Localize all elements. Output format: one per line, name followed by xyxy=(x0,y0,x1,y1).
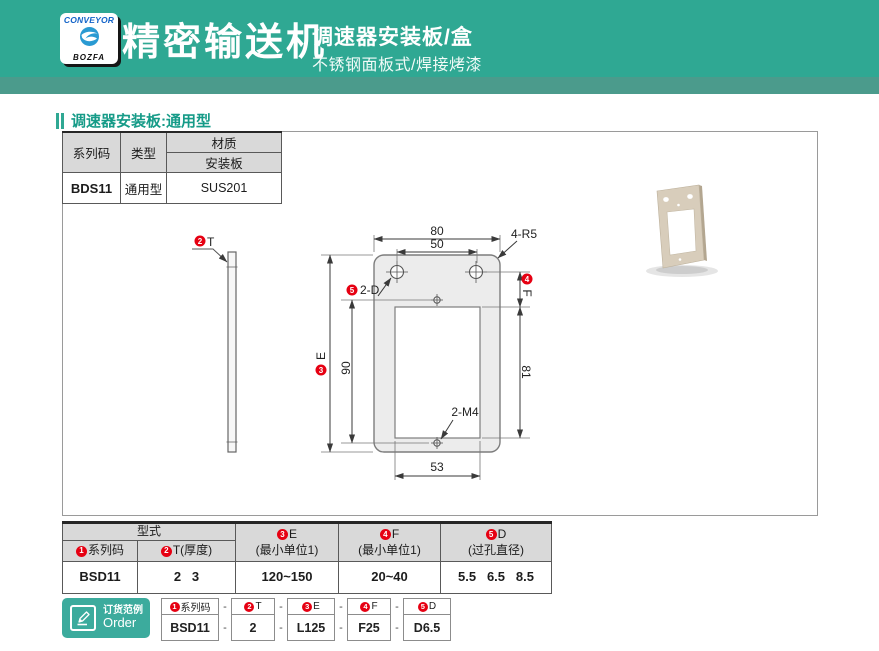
model-group-header: 型式 xyxy=(63,523,236,541)
badge-2-icon: 2 xyxy=(161,546,172,557)
model-header-thickness-label: T(厚度) xyxy=(173,543,212,557)
section-header: 调速器安装板:通用型 xyxy=(56,110,211,131)
model-header-f-sub: (最小单位1) xyxy=(358,543,421,557)
badge-2-icon: 2 xyxy=(244,602,254,612)
front-view xyxy=(374,255,500,452)
engineering-drawing: 2 T xyxy=(62,131,818,516)
dim-f-num: 4 xyxy=(525,275,530,284)
model-header-e-sub: (最小单位1) xyxy=(256,543,319,557)
dim-53: 53 xyxy=(430,460,444,474)
dim-81: 81 xyxy=(519,365,533,379)
order-series-value: BSD11 xyxy=(162,615,218,640)
thickness-badge-num: 2 xyxy=(198,237,203,246)
model-header-d-sub: (过孔直径) xyxy=(468,543,524,557)
dim-90: 90 xyxy=(339,361,353,375)
corner-radius-label: 4-R5 xyxy=(511,227,537,241)
model-header-series-label: 系列码 xyxy=(88,543,124,557)
dim-e-label: E xyxy=(314,352,328,360)
order-d-label: D xyxy=(429,601,436,612)
model-header-thickness: 2T(厚度) xyxy=(138,541,236,562)
badge-5-icon: 5 xyxy=(418,602,428,612)
page-subtitle: 调速器安装板/盒 xyxy=(312,21,473,51)
page-title: 精密输送机 xyxy=(122,24,327,62)
order-box-series: 1系列码 BSD11 xyxy=(161,598,219,641)
thread-label: 2-M4 xyxy=(451,405,479,419)
thickness-label: T xyxy=(207,235,215,249)
order-badge: 订货范例 Order xyxy=(62,598,150,638)
order-series-label: 系列码 xyxy=(181,599,211,614)
model-table: 型式 3E (最小单位1) 4F (最小单位1) 5D (过孔直径) 1系列码 … xyxy=(62,521,552,594)
order-dash: -- xyxy=(391,598,403,640)
catalog-page: CONVEYOR BOZFA 精密输送机 调速器安装板/盒 不锈钢面板式/焊接烤… xyxy=(0,0,879,651)
model-header-d-label: D xyxy=(498,527,507,541)
model-d-value: 5.5 6.5 8.5 xyxy=(441,562,552,594)
order-box-d: 5D D6.5 xyxy=(403,598,451,641)
dim-f-label: F xyxy=(520,289,534,296)
order-example: 订货范例 Order 1系列码 BSD11 -- 2T 2 -- 3E L125… xyxy=(62,598,451,641)
model-f-value: 20~40 xyxy=(339,562,441,594)
logo-bozfa-text: BOZFA xyxy=(73,53,105,62)
section-bar-icon xyxy=(61,113,64,129)
order-box-f: 4F F25 xyxy=(347,598,391,641)
badge-5-icon: 5 xyxy=(486,529,497,540)
order-d-value: D6.5 xyxy=(404,615,450,640)
hole-label: 2-D xyxy=(360,283,380,297)
badge-3-icon: 3 xyxy=(277,529,288,540)
model-header-f: 4F (最小单位1) xyxy=(339,523,441,562)
model-header-e-label: E xyxy=(289,527,297,541)
order-badge-en: Order xyxy=(103,616,143,631)
order-box-t: 2T 2 xyxy=(231,598,275,641)
page-tagline: 不锈钢面板式/焊接烤漆 xyxy=(312,51,482,75)
model-header-f-label: F xyxy=(392,527,399,541)
order-f-label: F xyxy=(371,601,377,612)
model-header-d: 5D (过孔直径) xyxy=(441,523,552,562)
section-title: 调速器安装板:通用型 xyxy=(71,110,211,131)
order-e-value: L125 xyxy=(288,615,334,640)
dim-e-num: 3 xyxy=(319,366,324,375)
badge-3-icon: 3 xyxy=(302,602,312,612)
badge-4-icon: 4 xyxy=(360,602,370,612)
order-t-value: 2 xyxy=(232,615,274,640)
order-t-label: T xyxy=(255,601,261,612)
part-3d-render xyxy=(646,185,718,277)
badge-1-icon: 1 xyxy=(170,602,180,612)
side-view: 2 T xyxy=(192,235,238,452)
section-bar-icon xyxy=(56,113,59,129)
badge-4-icon: 4 xyxy=(380,529,391,540)
hole-badge-num: 5 xyxy=(350,286,355,295)
dim-80: 80 xyxy=(430,224,444,238)
model-header-e: 3E (最小单位1) xyxy=(236,523,339,562)
badge-1-icon: 1 xyxy=(76,546,87,557)
order-e-label: E xyxy=(313,601,320,612)
logo-conveyor-text: CONVEYOR xyxy=(64,15,114,25)
order-dash: -- xyxy=(219,598,231,640)
header-accent-strip xyxy=(0,77,879,94)
order-dash: -- xyxy=(275,598,287,640)
order-box-e: 3E L125 xyxy=(287,598,335,641)
model-header-series: 1系列码 xyxy=(63,541,138,562)
globe-icon xyxy=(79,26,100,52)
pencil-icon xyxy=(70,605,96,631)
order-dash: -- xyxy=(335,598,347,640)
model-thickness-value: 2 3 xyxy=(138,562,236,594)
model-e-value: 120~150 xyxy=(236,562,339,594)
order-f-value: F25 xyxy=(348,615,390,640)
model-series-value: BSD11 xyxy=(63,562,138,594)
brand-logo: CONVEYOR BOZFA xyxy=(60,13,118,64)
dim-50: 50 xyxy=(430,237,444,251)
